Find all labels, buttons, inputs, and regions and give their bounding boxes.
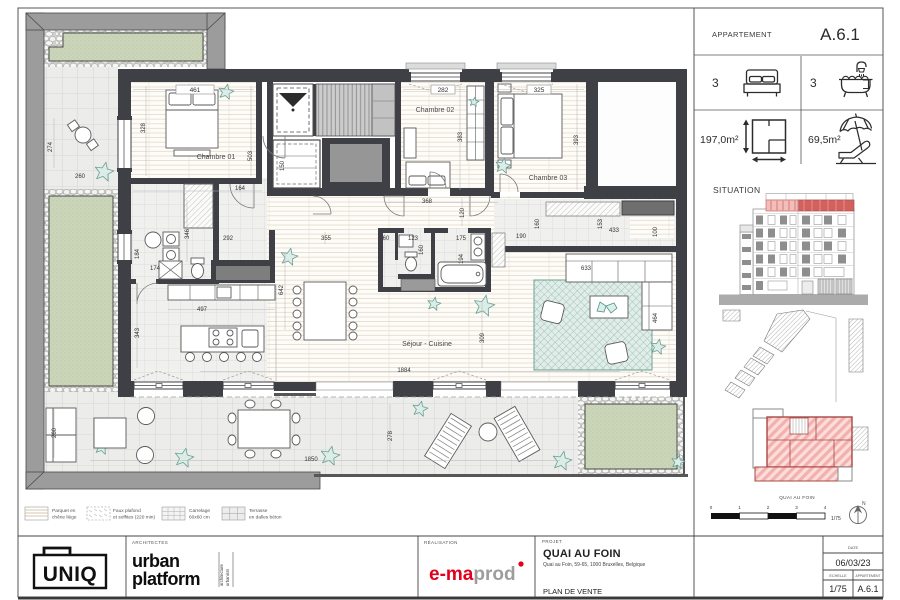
svg-text:A.6.1: A.6.1: [820, 25, 860, 44]
svg-text:QUAI AU FOIN: QUAI AU FOIN: [543, 548, 621, 560]
svg-text:184: 184: [135, 248, 141, 259]
svg-text:e-maprod: e-maprod: [429, 564, 516, 585]
svg-text:Chambre 02: Chambre 02: [416, 107, 455, 114]
svg-text:120: 120: [460, 207, 466, 218]
svg-text:153: 153: [598, 218, 604, 229]
svg-text:APPARTEMENT: APPARTEMENT: [855, 574, 880, 578]
svg-text:et soffites (220 min): et soffites (220 min): [113, 515, 155, 521]
svg-text:N: N: [862, 501, 866, 507]
svg-text:328: 328: [141, 122, 147, 133]
svg-text:1/75: 1/75: [829, 584, 847, 594]
svg-text:461: 461: [190, 87, 201, 94]
svg-text:282: 282: [438, 87, 449, 94]
svg-text:1850: 1850: [304, 457, 318, 463]
svg-text:433: 433: [609, 228, 620, 234]
svg-text:3: 3: [712, 76, 719, 90]
svg-text:355: 355: [321, 236, 332, 242]
svg-text:497: 497: [197, 307, 208, 313]
svg-text:325: 325: [534, 87, 545, 94]
svg-text:PROJET: PROJET: [542, 539, 562, 544]
svg-text:150: 150: [280, 160, 286, 171]
svg-text:platform: platform: [132, 569, 200, 589]
svg-text:architecture: architecture: [219, 563, 224, 586]
svg-text:1/75: 1/75: [831, 516, 841, 522]
svg-text:633: 633: [581, 266, 592, 272]
svg-text:292: 292: [223, 236, 234, 242]
svg-text:60x60 cm: 60x60 cm: [189, 515, 210, 521]
svg-text:Parquet en: Parquet en: [52, 508, 76, 514]
svg-text:Chambre 03: Chambre 03: [529, 175, 568, 182]
svg-text:3: 3: [810, 76, 817, 90]
svg-text:197,0m²: 197,0m²: [700, 134, 739, 146]
svg-text:260: 260: [75, 174, 86, 180]
svg-text:174: 174: [150, 266, 161, 272]
svg-text:Quai au Foin, 59-65, 1000 Bru: Quai au Foin, 59-65, 1000 Bruxelles, Bel…: [543, 562, 646, 568]
svg-text:160: 160: [535, 218, 541, 229]
svg-text:393: 393: [574, 134, 580, 145]
svg-text:383: 383: [458, 131, 464, 142]
svg-text:UNIQ: UNIQ: [43, 563, 98, 586]
svg-text:190: 190: [516, 234, 527, 240]
svg-text:urbanism: urbanism: [225, 568, 230, 586]
svg-text:1884: 1884: [397, 368, 411, 374]
svg-text:Faux plafond: Faux plafond: [113, 508, 141, 514]
svg-text:503: 503: [248, 150, 254, 161]
svg-text:642: 642: [279, 284, 285, 295]
svg-text:100: 100: [653, 226, 659, 237]
svg-text:DATE: DATE: [848, 545, 859, 550]
svg-text:ARCHITECTES: ARCHITECTES: [132, 540, 168, 545]
svg-text:346: 346: [185, 228, 191, 239]
svg-text:343: 343: [135, 327, 141, 338]
svg-text:160: 160: [419, 244, 425, 255]
svg-text:Séjour - Cuisine: Séjour - Cuisine: [402, 341, 452, 348]
svg-text:69,5m²: 69,5m²: [808, 134, 841, 146]
svg-text:ECHELLE: ECHELLE: [829, 574, 847, 578]
svg-text:SITUATION: SITUATION: [713, 185, 760, 195]
svg-text:464: 464: [653, 312, 659, 323]
svg-text:260: 260: [52, 427, 58, 438]
svg-text:194: 194: [459, 253, 465, 264]
svg-text:PLAN DE VENTE: PLAN DE VENTE: [543, 587, 602, 596]
svg-text:368: 368: [422, 199, 433, 205]
svg-text:278: 278: [388, 430, 394, 441]
svg-text:Chambre 01: Chambre 01: [197, 154, 236, 161]
svg-text:309: 309: [480, 332, 486, 343]
svg-text:06/03/23: 06/03/23: [835, 558, 870, 568]
svg-text:A.6.1: A.6.1: [857, 584, 878, 594]
svg-text:urban: urban: [132, 551, 180, 571]
svg-text:60: 60: [383, 236, 390, 242]
svg-text:Terrasse: Terrasse: [249, 508, 268, 514]
svg-text:175: 175: [456, 236, 467, 242]
svg-text:123: 123: [408, 236, 419, 242]
svg-text:274: 274: [48, 141, 54, 152]
svg-text:RÉALISATION: RÉALISATION: [424, 539, 458, 545]
svg-text:164: 164: [235, 186, 246, 192]
svg-text:QUAI AU FOIN: QUAI AU FOIN: [779, 495, 815, 501]
svg-text:chêne liège: chêne liège: [52, 515, 77, 521]
svg-text:en dalles béton: en dalles béton: [249, 515, 282, 521]
svg-text:Carrelage: Carrelage: [189, 508, 210, 514]
svg-text:APPARTEMENT: APPARTEMENT: [712, 30, 772, 39]
